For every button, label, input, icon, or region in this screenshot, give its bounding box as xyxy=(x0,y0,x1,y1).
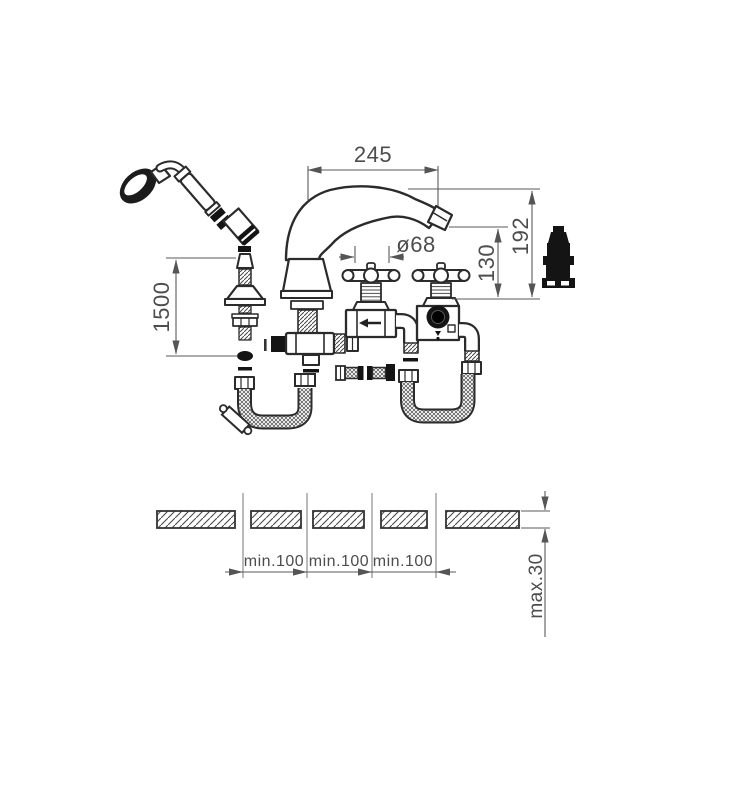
connector-band xyxy=(358,366,364,380)
bottom-stub xyxy=(303,355,319,365)
valve-stem xyxy=(431,283,451,298)
dim-label-deck-thickness: max.30 xyxy=(526,553,547,618)
gap-dash xyxy=(303,369,319,373)
washer xyxy=(291,301,323,309)
valve-stem xyxy=(361,283,381,302)
shower-column-spacer xyxy=(238,246,251,252)
deck-segment xyxy=(381,511,427,528)
mounting-nut xyxy=(233,318,257,326)
valve-flange xyxy=(353,302,389,310)
elbow-stub xyxy=(465,351,479,361)
threaded-rod xyxy=(239,306,251,313)
dim-label-hole-pitch-b: min.100 xyxy=(309,553,369,570)
spout-base-lip xyxy=(281,291,332,298)
washer-edge xyxy=(264,339,267,351)
gap-dash xyxy=(403,358,418,362)
deck-segment xyxy=(313,511,364,528)
connector-band xyxy=(367,366,373,380)
dim-shower-hose-length: 1500 xyxy=(149,258,238,356)
dim-label-hole-pitch-a: min.100 xyxy=(244,553,304,570)
handle-ball-right xyxy=(389,270,400,281)
end-cap-block xyxy=(271,336,286,352)
tee-body xyxy=(286,333,334,354)
hose-nut xyxy=(399,370,418,382)
threaded-rod-lower xyxy=(239,327,251,340)
threaded-shank xyxy=(239,269,251,285)
diverter-tee xyxy=(264,301,358,373)
dim-outlet-height: 130 xyxy=(449,227,508,297)
handle-ball-left xyxy=(413,270,424,281)
diagram-canvas: 245 192 130 ø68 1500 xyxy=(0,0,748,800)
valve-hot xyxy=(343,263,419,382)
dim-hole-pitch: min.100 min.100 min.100 xyxy=(225,553,456,572)
connector-braid xyxy=(373,368,386,379)
deck-segment xyxy=(251,511,301,528)
handle-ball-right xyxy=(459,270,470,281)
dim-label-total-height: 192 xyxy=(508,217,533,255)
spout-base-skirt xyxy=(283,259,331,291)
cartridge-silhouette xyxy=(542,226,575,288)
escutcheon-lip xyxy=(225,299,265,305)
shower-cradle xyxy=(223,208,259,245)
shower-column xyxy=(225,246,265,389)
body-detail-square xyxy=(448,325,455,332)
dim-label-outlet-height: 130 xyxy=(474,244,499,282)
hose-nut xyxy=(462,362,481,374)
handle-ball-center xyxy=(364,269,378,283)
ribbed-nut xyxy=(334,334,345,353)
elbow-stub xyxy=(404,343,418,353)
handle-ball-left xyxy=(343,270,354,281)
deck-segment xyxy=(157,511,235,528)
dim-label-hole-pitch-c: min.100 xyxy=(373,553,433,570)
hose-nut xyxy=(235,377,254,389)
gap-dash xyxy=(238,367,252,371)
connector-hoses xyxy=(336,364,395,381)
dim-label-handle-diameter: ø68 xyxy=(396,232,435,257)
dim-label-shower-hose-length: 1500 xyxy=(149,282,174,333)
connector-braid xyxy=(345,368,358,379)
shower-cradle-cone xyxy=(237,254,253,268)
dim-deck-thickness: max.30 xyxy=(521,491,550,637)
o-ring xyxy=(237,351,253,361)
bath-mixer-technical-drawing: 245 192 130 ø68 1500 xyxy=(0,0,748,800)
hand-shower xyxy=(113,162,260,246)
valve-cold xyxy=(413,263,482,374)
connector-hex-block xyxy=(386,364,395,381)
dim-label-spout-reach: 245 xyxy=(354,142,392,167)
deck-segment xyxy=(446,511,519,528)
dim-handle-diameter: ø68 xyxy=(339,232,436,263)
shower-hose xyxy=(217,374,315,437)
escutcheon-bell xyxy=(227,286,263,299)
threaded-shank xyxy=(298,310,317,334)
hose-nut-tee-side xyxy=(295,374,315,386)
handle-ball-center xyxy=(434,269,448,283)
